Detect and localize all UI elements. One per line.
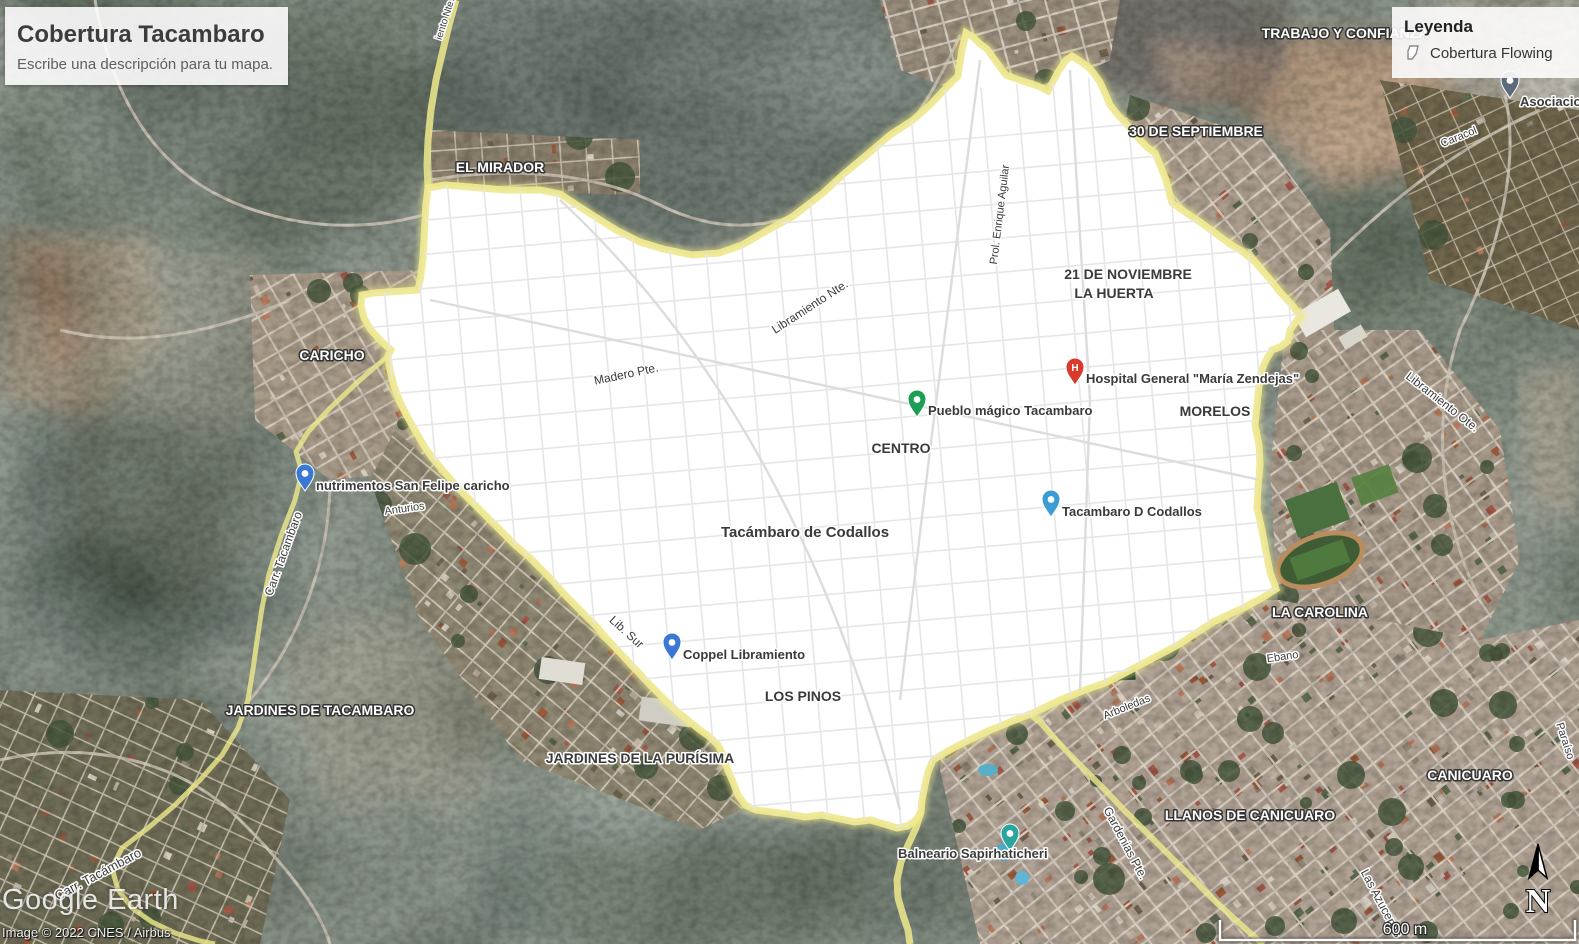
svg-text:LA CAROLINA: LA CAROLINA: [1272, 604, 1368, 620]
svg-text:EL MIRADOR: EL MIRADOR: [456, 159, 544, 175]
svg-text:600 m: 600 m: [1383, 921, 1427, 938]
svg-text:CANICUARO: CANICUARO: [1427, 767, 1513, 783]
svg-text:Coppel Libramiento: Coppel Libramiento: [683, 647, 805, 662]
svg-text:LOS PINOS: LOS PINOS: [765, 688, 841, 704]
svg-text:JARDINES DE TACAMBARO: JARDINES DE TACAMBARO: [226, 702, 415, 718]
svg-text:Balneario Sapirhaticheri: Balneario Sapirhaticheri: [898, 846, 1048, 861]
svg-text:MORELOS: MORELOS: [1180, 403, 1251, 419]
svg-text:LA HUERTA: LA HUERTA: [1074, 285, 1153, 301]
svg-text:LLANOS DE CANICUARO: LLANOS DE CANICUARO: [1165, 807, 1335, 823]
svg-text:30 DE SEPTIEMBRE: 30 DE SEPTIEMBRE: [1129, 123, 1263, 139]
svg-text:Tacambaro D Codallos: Tacambaro D Codallos: [1062, 504, 1202, 519]
svg-text:Hospital General "María Zendej: Hospital General "María Zendejas": [1086, 371, 1299, 386]
svg-text:Pueblo mágico Tacambaro: Pueblo mágico Tacambaro: [928, 403, 1093, 418]
svg-text:H: H: [1071, 363, 1078, 374]
svg-text:JARDINES DE LA PURÍSIMA: JARDINES DE LA PURÍSIMA: [546, 750, 735, 766]
svg-text:Tacámbaro de Codallos: Tacámbaro de Codallos: [721, 524, 889, 541]
svg-text:CARICHO: CARICHO: [299, 347, 364, 363]
svg-text:CENTRO: CENTRO: [871, 440, 930, 456]
svg-text:Asociacion: Asociacion: [1520, 94, 1579, 109]
svg-text:nutrimentos San Felipe caricho: nutrimentos San Felipe caricho: [316, 478, 510, 493]
svg-text:21 DE NOVIEMBRE: 21 DE NOVIEMBRE: [1064, 266, 1192, 282]
svg-text:N: N: [1526, 883, 1551, 920]
